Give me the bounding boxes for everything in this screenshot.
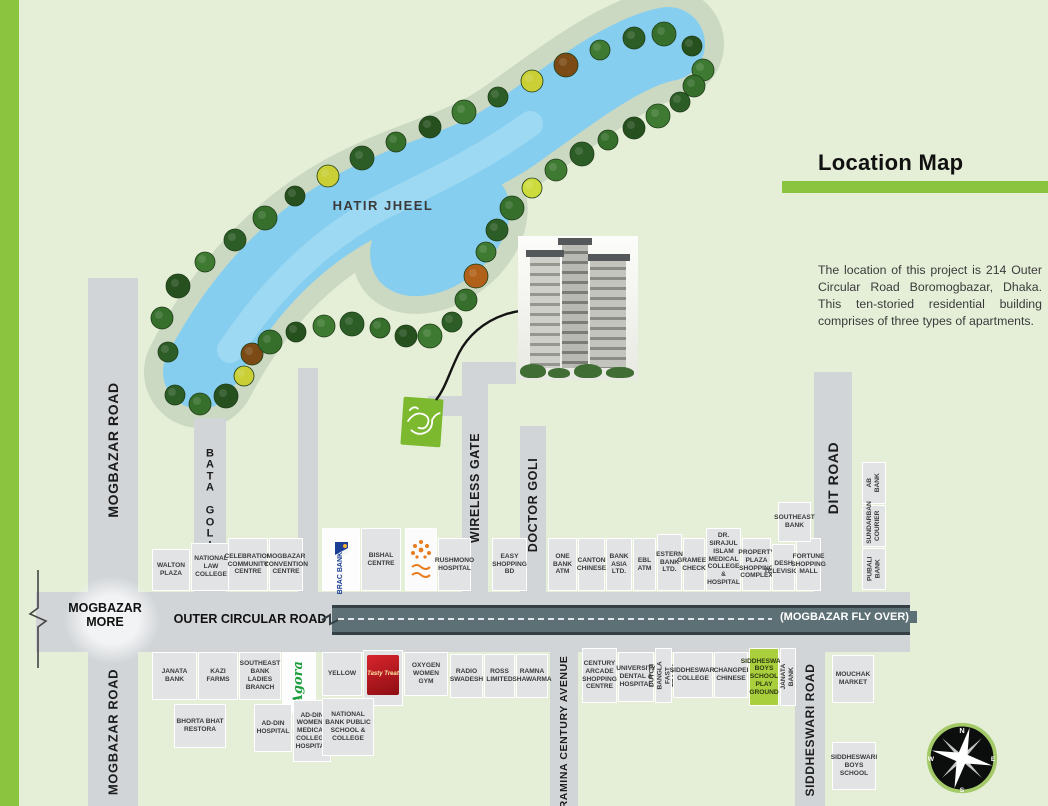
- landmark-ross-limited: ROSS LIMITED: [484, 654, 515, 698]
- flyover-label: (MOGBAZAR FLY OVER): [772, 611, 917, 623]
- road-label-siddheswari-road: SIDDHESWARI ROAD: [803, 664, 817, 797]
- landmark-label: NATIONAL BANK PUBLIC SCHOOL & COLLEGE: [324, 711, 372, 742]
- landmark-bengali-brand-logo: [405, 528, 437, 591]
- orange-sunburst-logo-icon: [408, 534, 434, 586]
- landmark-label: RADIO SWADESH: [450, 668, 483, 684]
- compass-west-label: W: [928, 756, 935, 763]
- landmark-century-arcade: CENTURY ARCADE SHOPPING CENTRE: [582, 648, 617, 703]
- landmark-yellow: YELLOW: [322, 652, 362, 696]
- landmark-label: JANATA BANK: [154, 668, 195, 684]
- landmark-kazi-farms: KAZI FARMS: [198, 652, 238, 700]
- project-description: The location of this project is 214 Oute…: [818, 262, 1042, 330]
- landmark-label: DR. SIRAJUL ISLAM MEDICAL COLLEGE & HOSP…: [707, 532, 740, 586]
- landmark-label: OXYGEN WOMEN GYM: [406, 662, 446, 685]
- landmark-label: BHORTA BHAT RESTORA: [176, 718, 224, 734]
- landmark-celebration-community-centre: CELEBRATION COMMUNITY CENTRE: [228, 538, 268, 591]
- landmark-bank-asia-ltd: BANK ASIA LTD.: [606, 538, 632, 591]
- landmark-brac-bank: BRAC BANK: [322, 528, 360, 591]
- landmark-label: WALTON PLAZA: [154, 562, 188, 578]
- landmark-siddheswari-boys-school: SIDDHESWARI BOYS SCHOOL: [832, 742, 876, 790]
- compass-south-label: S: [960, 787, 965, 794]
- project-logo-calligraphy-icon: [400, 397, 443, 448]
- lake-label: HATIR JHEEL: [318, 198, 448, 213]
- road-label-doctor-goli: DOCTOR GOLI: [526, 458, 540, 553]
- project-site-marker: [400, 397, 443, 448]
- brac-bank-logo-text: BRAC BANK: [337, 552, 345, 594]
- landmark-label: SOUTHEAST BANK: [774, 514, 815, 530]
- landmark-label: AD-DIN HOSPITAL: [256, 720, 290, 736]
- road-label-ramina-century-avenue: RAMINA CENTURY AVENUE: [558, 656, 570, 806]
- landmark-fortune-shopping-mall: FORTUNE SHOPPING MALL: [796, 538, 821, 591]
- landmark-bishal-centre: BISHAL CENTRE: [361, 528, 401, 591]
- page-title: Location Map: [818, 150, 963, 176]
- landmark-walton-plaza: WALTON PLAZA: [152, 549, 190, 591]
- landmark-ramna-shawarma: RAMNA SHAWARMA: [516, 654, 548, 698]
- landmark-label: ROSS LIMITED: [486, 668, 513, 684]
- road-label-mogbazar-road-lower: MOGBAZAR ROAD: [106, 669, 121, 795]
- landmark-label: BANK ASIA LTD.: [608, 553, 630, 576]
- landmark-mogbazar-convention-centre: MOGBAZAR CONVENTION CENTRE: [269, 538, 303, 591]
- road-label-mogbazar-road-upper: MOGBAZAR ROAD: [105, 382, 121, 517]
- outer-circular-road-label: OUTER CIRCULAR ROAD: [170, 612, 330, 626]
- landmark-southeast-bank: SOUTHEAST BANK: [778, 502, 811, 542]
- compass-north-label: N: [959, 726, 964, 735]
- landmark-ab-bank: AB BANK: [862, 462, 886, 504]
- landmark-ad-din-hospital: AD-DIN HOSPITAL: [254, 704, 292, 752]
- landmark-janata-bank: JANATA BANK: [152, 652, 197, 700]
- location-map-page: { "header": { "title": "Location Map", "…: [0, 0, 1048, 806]
- landmark-label: JANATA BANK: [780, 664, 796, 690]
- landmark-siddheswari-boys-play-ground: SIDDHESWARI BOYS SCHOOL PLAY GROUND: [749, 648, 779, 706]
- landmark-label: SOUTHEAST BANK LADIES BRANCH: [240, 660, 281, 691]
- landmark-label: PUBALI BANK: [866, 557, 882, 582]
- tasty-treat-logo: Tasty Treat: [367, 655, 399, 696]
- landmark-southeast-bank-ladies-branch: SOUTHEAST BANK LADIES BRANCH: [239, 652, 281, 700]
- landmark-label: MOUCHAK MARKET: [834, 671, 872, 687]
- landmark-janata-bank-2: JANATA BANK: [780, 648, 796, 706]
- landmark-label: ONE BANK ATM: [550, 553, 575, 576]
- landmark-sundarban-courier: SUNDARBAN COURIER: [862, 505, 886, 547]
- landmark-label: EBL ATM: [635, 557, 654, 573]
- agora-logo-text: Agora: [291, 661, 306, 704]
- landmark-national-bank-public-school: NATIONAL BANK PUBLIC SCHOOL & COLLEGE: [322, 698, 374, 756]
- landmark-label: AB BANK: [866, 473, 882, 493]
- landmark-label: YELLOW: [328, 670, 356, 678]
- title-underline-bar: [782, 181, 1048, 193]
- road-label-wireless-gate: WIRELESS GATE: [468, 433, 482, 543]
- landmark-label: KAZI FARMS: [200, 668, 236, 684]
- landmark-label: CANTON CHINESE: [577, 557, 606, 573]
- mogbazar-flyover: (MOGBAZAR FLY OVER): [332, 605, 910, 635]
- landmark-label: CENTURY ARCADE SHOPPING CENTRE: [582, 660, 617, 691]
- road-label-dit-road: DIT ROAD: [825, 442, 841, 514]
- landmark-label: SIDDHESWARI BOYS SCHOOL: [831, 754, 878, 777]
- junction-label: MOGBAZAR MORE: [59, 602, 151, 630]
- landmark-ebl-atm: EBL ATM: [633, 538, 656, 591]
- landmark-label: EASY SHOPPING BD: [492, 553, 527, 576]
- landmark-dr-sirajul-islam-medical: DR. SIRAJUL ISLAM MEDICAL COLLEGE & HOSP…: [706, 528, 741, 591]
- landmark-one-bank-atm: ONE BANK ATM: [548, 538, 577, 591]
- landmark-label: SUNDARBAN COURIER: [866, 508, 882, 544]
- compass-east-label: E: [991, 756, 996, 763]
- project-building-photo: [518, 236, 638, 380]
- landmark-bhorta-bhat-restora: BHORTA BHAT RESTORA: [174, 704, 226, 748]
- landmark-rushmono-hospital: RUSHMONO HOSPITAL: [438, 538, 471, 591]
- landmark-label: RUSHMONO HOSPITAL: [435, 557, 474, 573]
- landmark-oxygen-women-gym: OXYGEN WOMEN GYM: [404, 652, 448, 696]
- landmark-canton-chinese: CANTON CHINESE: [578, 538, 605, 591]
- landmark-label: SIDDHESWARI COLLEGE: [670, 667, 717, 683]
- landmark-label: RAMNA SHAWARMA: [512, 668, 551, 684]
- compass-rose: N E S W: [925, 721, 999, 795]
- landmark-radio-swadesh: RADIO SWADESH: [450, 654, 483, 698]
- landmark-siddheswari-college: SIDDHESWARI COLLEGE: [673, 652, 713, 698]
- landmark-label: FORTUNE SHOPPING MALL: [791, 553, 826, 576]
- landmark-label: MOGBAZAR CONVENTION CENTRE: [264, 553, 308, 576]
- landmark-grameen-check: GRAMEEN CHECK: [683, 538, 705, 591]
- landmark-pubali-bank: PUBALI BANK: [862, 548, 886, 590]
- landmark-mouchak-market: MOUCHAK MARKET: [832, 655, 874, 703]
- landmark-label: BISHAL CENTRE: [363, 552, 399, 568]
- landmark-easy-shopping-bd: EASY SHOPPING BD: [492, 538, 527, 591]
- road-label-bata-goli: BATA GOLI: [206, 449, 215, 552]
